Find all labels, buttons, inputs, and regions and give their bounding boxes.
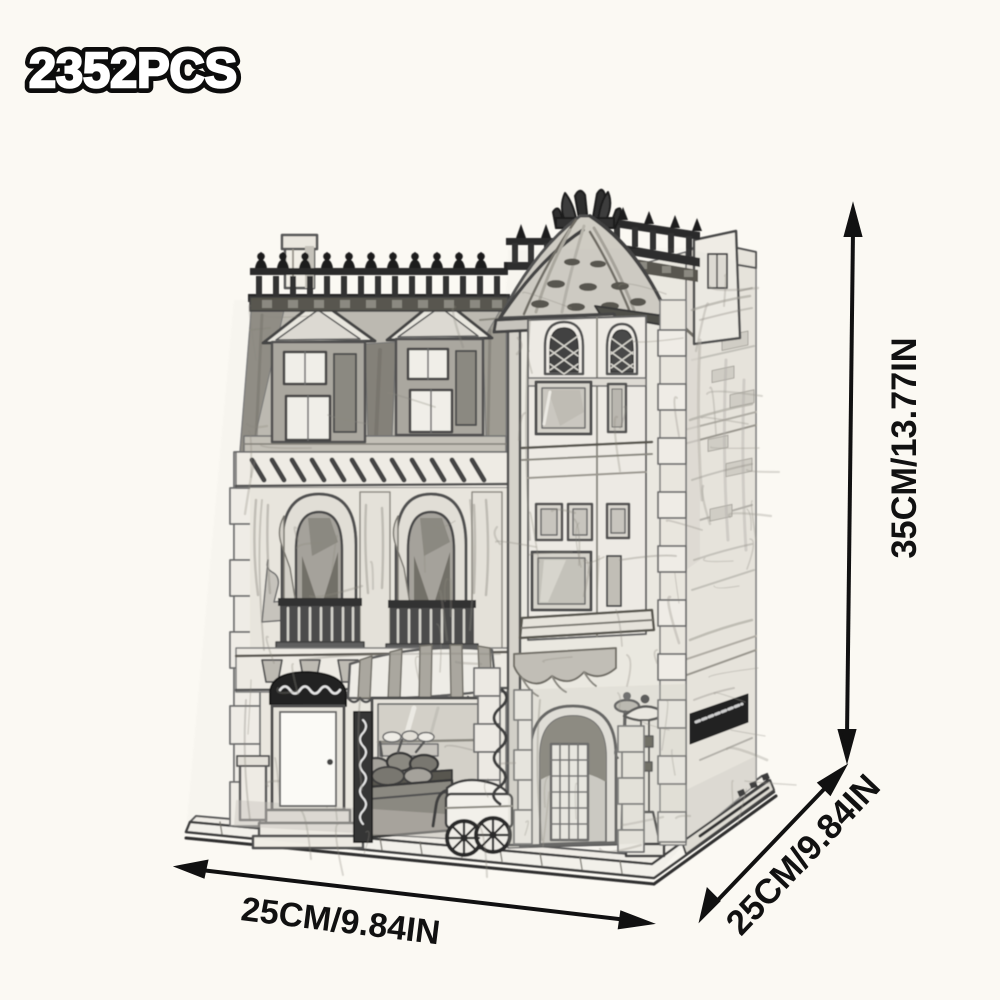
svg-text:35CM/13.77IN: 35CM/13.77IN (885, 338, 924, 559)
svg-text:2352PCS: 2352PCS (29, 44, 237, 98)
